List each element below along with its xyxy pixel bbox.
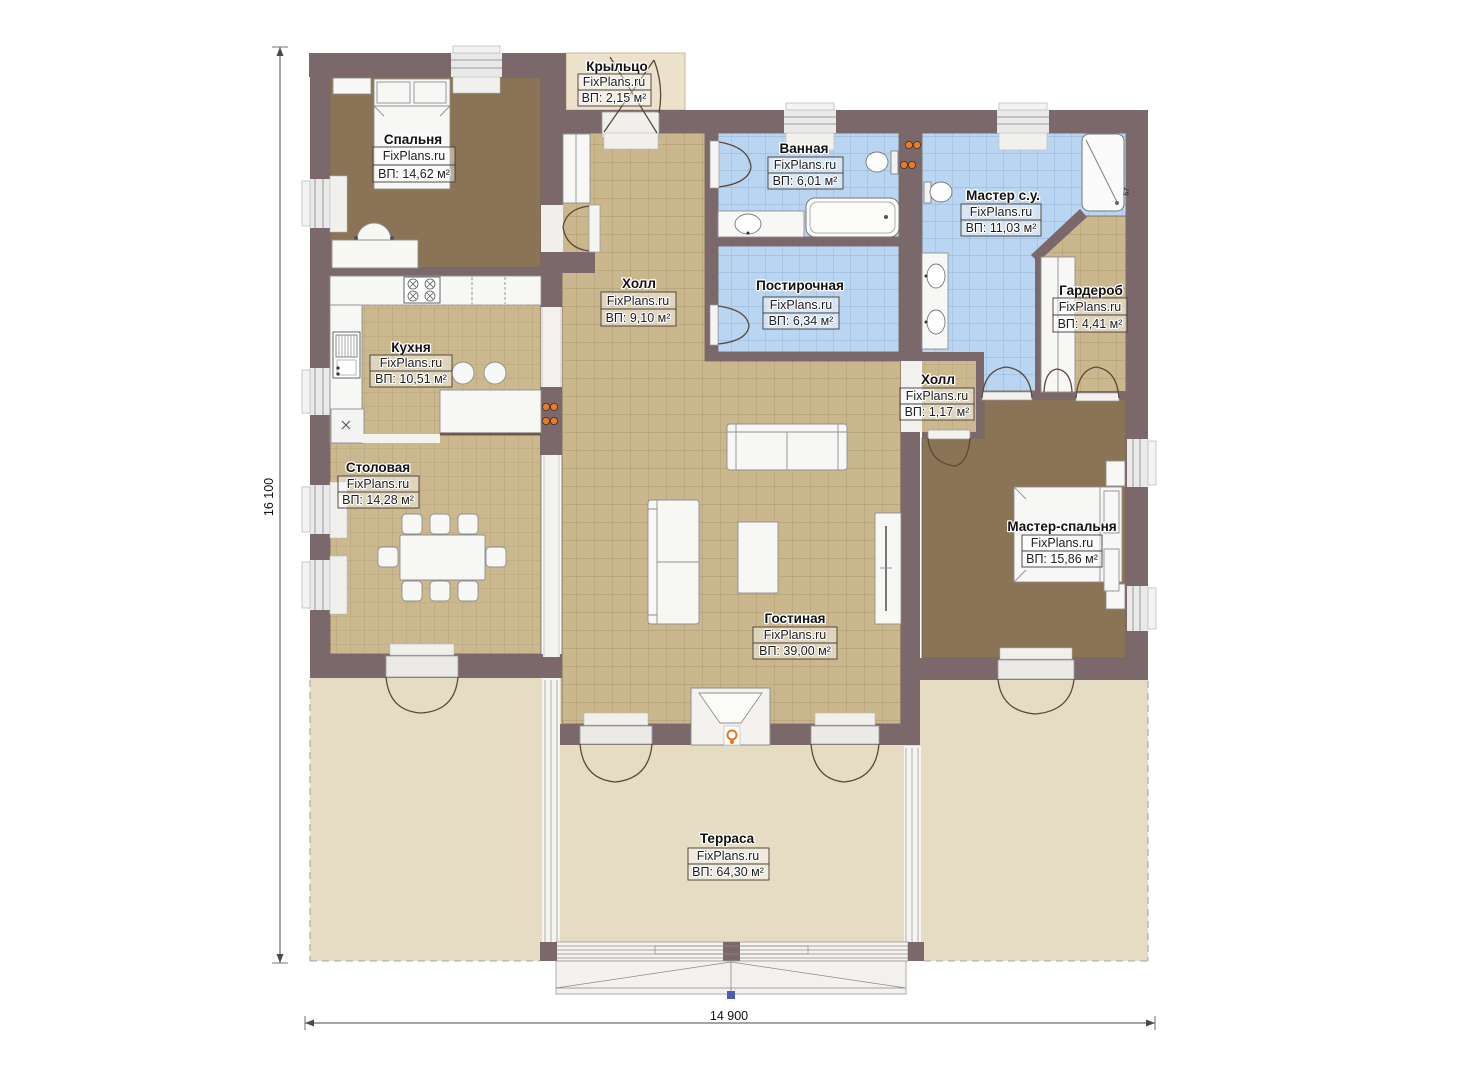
svg-text:ВП: 6,01 м²: ВП: 6,01 м² bbox=[773, 174, 838, 188]
svg-text:ВП: 6,34 м²: ВП: 6,34 м² bbox=[769, 314, 834, 328]
svg-text:Крыльцо: Крыльцо bbox=[586, 59, 647, 74]
svg-text:Гостиная: Гостиная bbox=[764, 611, 825, 626]
svg-text:ВП: 1,17 м²: ВП: 1,17 м² bbox=[905, 405, 970, 419]
svg-text:FixPlans.ru: FixPlans.ru bbox=[383, 149, 446, 163]
svg-text:Кухня: Кухня bbox=[391, 340, 430, 355]
svg-text:FixPlans.ru: FixPlans.ru bbox=[347, 477, 410, 491]
svg-text:ВП: 2,15 м²: ВП: 2,15 м² bbox=[582, 91, 647, 105]
svg-text:Холл: Холл bbox=[921, 372, 955, 387]
svg-text:Столовая: Столовая bbox=[346, 460, 410, 475]
svg-text:FixPlans.ru: FixPlans.ru bbox=[1031, 536, 1094, 550]
svg-text:Мастер с.у.: Мастер с.у. bbox=[966, 188, 1040, 203]
svg-text:FixPlans.ru: FixPlans.ru bbox=[1059, 300, 1122, 314]
svg-text:FixPlans.ru: FixPlans.ru bbox=[697, 849, 760, 863]
svg-text:Мастер-спальня: Мастер-спальня bbox=[1007, 519, 1116, 534]
svg-text:ВП: 64,30 м²: ВП: 64,30 м² bbox=[692, 865, 764, 879]
svg-text:Гардероб: Гардероб bbox=[1059, 283, 1123, 298]
svg-text:FixPlans.ru: FixPlans.ru bbox=[970, 205, 1033, 219]
svg-text:Холл: Холл bbox=[622, 276, 656, 291]
svg-text:FixPlans.ru: FixPlans.ru bbox=[583, 75, 646, 89]
svg-text:FixPlans.ru: FixPlans.ru bbox=[764, 628, 827, 642]
svg-text:14 900: 14 900 bbox=[710, 1009, 748, 1023]
svg-text:Спальня: Спальня bbox=[384, 132, 442, 147]
svg-text:ВП: 14,28 м²: ВП: 14,28 м² bbox=[342, 493, 414, 507]
svg-text:57: 57 bbox=[1123, 187, 1131, 196]
svg-text:FixPlans.ru: FixPlans.ru bbox=[380, 356, 443, 370]
svg-text:16 100: 16 100 bbox=[262, 478, 276, 516]
svg-text:ВП: 9,10 м²: ВП: 9,10 м² bbox=[606, 311, 671, 325]
svg-text:FixPlans.ru: FixPlans.ru bbox=[774, 158, 837, 172]
svg-text:FixPlans.ru: FixPlans.ru bbox=[607, 294, 670, 308]
svg-text:ВП: 10,51 м²: ВП: 10,51 м² bbox=[375, 372, 447, 386]
svg-text:ВП: 15,86 м²: ВП: 15,86 м² bbox=[1026, 552, 1098, 566]
svg-text:ВП: 4,41 м²: ВП: 4,41 м² bbox=[1058, 317, 1123, 331]
svg-text:FixPlans.ru: FixPlans.ru bbox=[906, 389, 969, 403]
svg-text:ВП: 14,62 м²: ВП: 14,62 м² bbox=[378, 167, 450, 181]
svg-text:FixPlans.ru: FixPlans.ru bbox=[770, 298, 833, 312]
svg-text:ВП: 11,03 м²: ВП: 11,03 м² bbox=[966, 221, 1037, 235]
svg-text:Ванная: Ванная bbox=[780, 141, 829, 156]
svg-text:ВП: 39,00 м²: ВП: 39,00 м² bbox=[759, 644, 831, 658]
svg-text:Терраса: Терраса bbox=[700, 831, 755, 846]
svg-text:Постирочная: Постирочная bbox=[756, 278, 844, 293]
